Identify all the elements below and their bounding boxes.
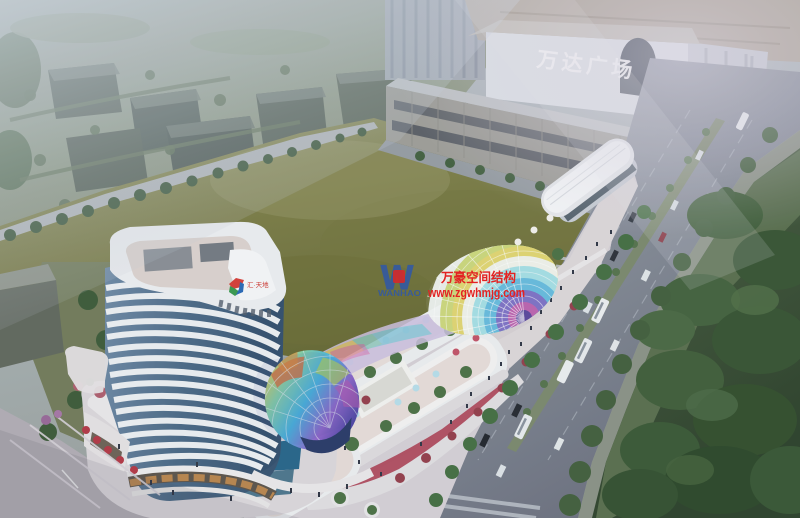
svg-text:万豪空间结构: 万豪空间结构 bbox=[440, 270, 516, 285]
svg-text:www.zgwhmjg.com: www.zgwhmjg.com bbox=[427, 285, 525, 300]
svg-text:WANHAO: WANHAO bbox=[378, 289, 421, 298]
